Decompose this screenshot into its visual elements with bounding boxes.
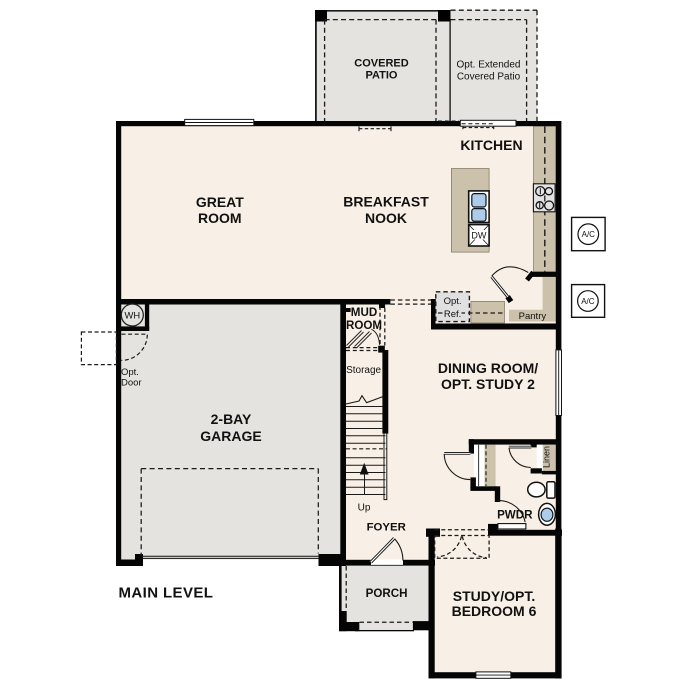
svg-text:Up: Up: [358, 502, 371, 513]
svg-text:Door: Door: [121, 377, 142, 388]
svg-text:MUD: MUD: [351, 306, 377, 319]
svg-text:Pantry: Pantry: [519, 311, 547, 322]
svg-text:FOYER: FOYER: [367, 521, 406, 533]
svg-text:Storage: Storage: [346, 365, 381, 376]
svg-text:PWDR: PWDR: [497, 508, 533, 521]
svg-text:BEDROOM 6: BEDROOM 6: [452, 603, 537, 619]
svg-text:Opt.: Opt.: [444, 296, 462, 307]
svg-text:PORCH: PORCH: [366, 587, 408, 600]
svg-text:Ref.: Ref.: [444, 309, 461, 320]
svg-text:A/C: A/C: [581, 297, 595, 306]
svg-text:ROOM: ROOM: [198, 210, 242, 226]
svg-text:Opt.: Opt.: [121, 367, 139, 378]
svg-text:ROOM: ROOM: [346, 319, 382, 332]
svg-text:A/C: A/C: [582, 230, 596, 239]
svg-text:Covered Patio: Covered Patio: [457, 71, 521, 82]
svg-text:DINING ROOM/: DINING ROOM/: [438, 360, 538, 376]
svg-text:KITCHEN: KITCHEN: [460, 137, 522, 153]
svg-text:Opt. Extended: Opt. Extended: [457, 59, 521, 70]
svg-text:STUDY/OPT.: STUDY/OPT.: [453, 588, 535, 604]
svg-text:OPT. STUDY 2: OPT. STUDY 2: [441, 376, 535, 392]
svg-text:DW: DW: [471, 230, 486, 240]
svg-text:MAIN LEVEL: MAIN LEVEL: [119, 585, 214, 602]
svg-text:GARAGE: GARAGE: [200, 428, 261, 444]
svg-text:BREAKFAST: BREAKFAST: [343, 194, 429, 210]
svg-text:COVERED: COVERED: [354, 58, 408, 70]
svg-text:PATIO: PATIO: [366, 69, 398, 81]
svg-text:WH: WH: [124, 309, 140, 320]
svg-text:2-BAY: 2-BAY: [211, 411, 252, 427]
svg-text:GREAT: GREAT: [196, 194, 244, 210]
svg-text:NOOK: NOOK: [365, 210, 407, 226]
svg-text:Linen: Linen: [541, 446, 551, 468]
